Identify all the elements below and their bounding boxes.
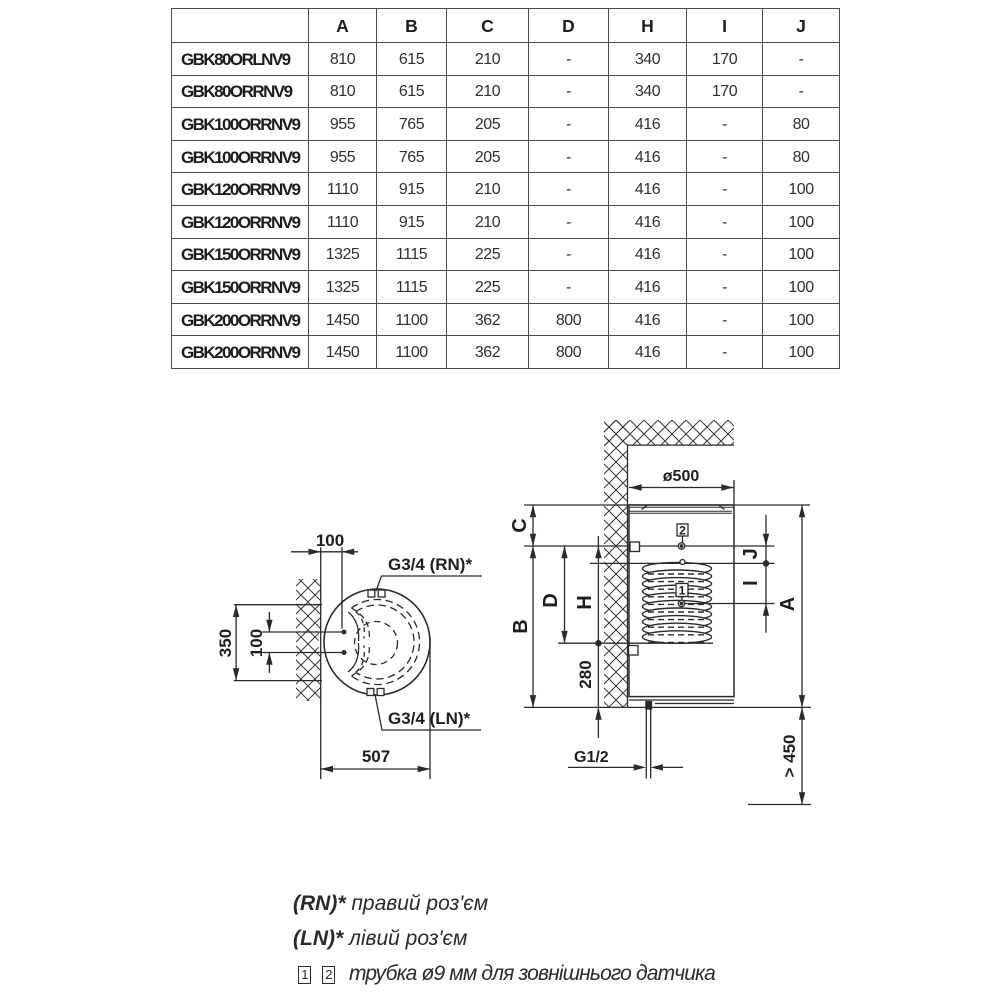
- svg-text:> 450: > 450: [780, 734, 799, 777]
- svg-text:100: 100: [247, 629, 266, 657]
- svg-text:J: J: [740, 548, 762, 559]
- svg-text:100: 100: [316, 531, 344, 550]
- svg-text:H: H: [574, 595, 596, 609]
- svg-text:G3/4 (RN)*: G3/4 (RN)*: [388, 555, 472, 574]
- svg-text:1: 1: [679, 584, 686, 598]
- svg-text:G1/2: G1/2: [574, 749, 609, 766]
- svg-text:507: 507: [362, 747, 390, 766]
- svg-text:G3/4 (LN)*: G3/4 (LN)*: [388, 709, 471, 728]
- svg-text:ø500: ø500: [663, 468, 700, 485]
- svg-text:B: B: [510, 619, 532, 633]
- svg-text:I: I: [740, 580, 762, 586]
- svg-text:350: 350: [216, 629, 235, 657]
- svg-text:C: C: [509, 518, 531, 532]
- svg-text:D: D: [540, 593, 562, 607]
- svg-text:A: A: [777, 597, 799, 611]
- svg-text:280: 280: [576, 660, 595, 688]
- svg-text:2: 2: [679, 524, 686, 538]
